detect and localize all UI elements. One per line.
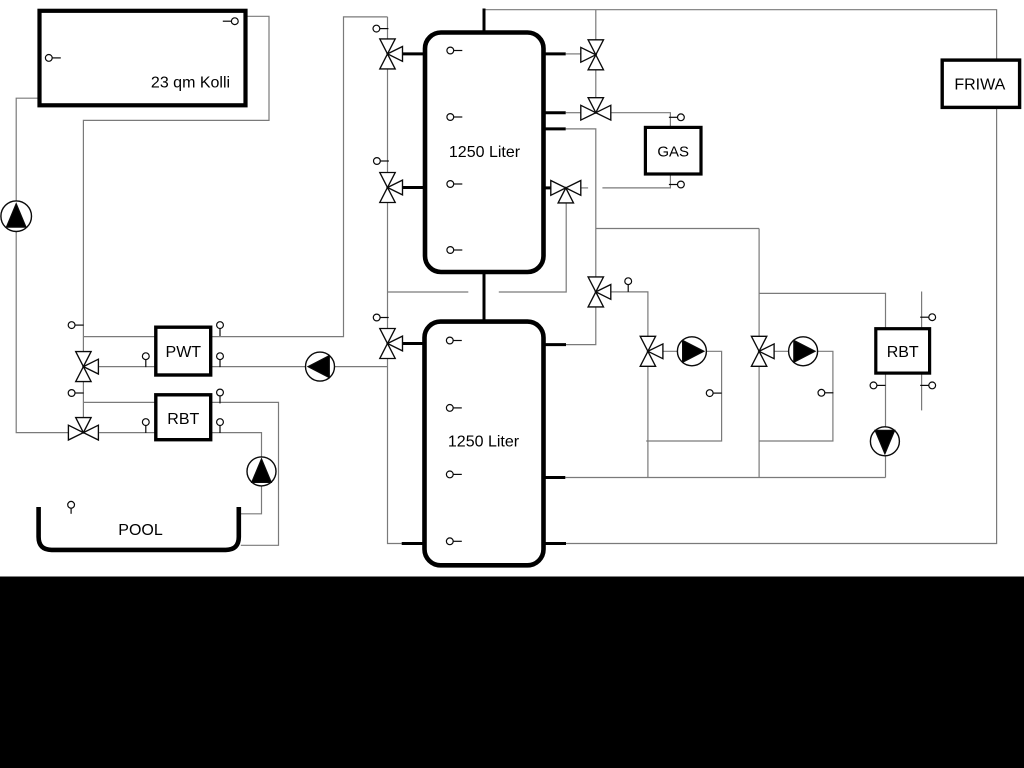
svg-text:1250 Liter: 1250 Liter: [448, 434, 520, 451]
svg-text:POOL: POOL: [118, 522, 163, 539]
svg-text:PWT: PWT: [166, 344, 202, 361]
svg-text:RBT: RBT: [887, 344, 919, 361]
svg-text:23 qm Kolli: 23 qm Kolli: [151, 75, 230, 92]
svg-text:1250 Liter: 1250 Liter: [449, 144, 521, 161]
svg-text:RBT: RBT: [167, 411, 199, 428]
svg-text:FRIWA: FRIWA: [954, 77, 1005, 94]
svg-text:GAS: GAS: [657, 143, 689, 160]
